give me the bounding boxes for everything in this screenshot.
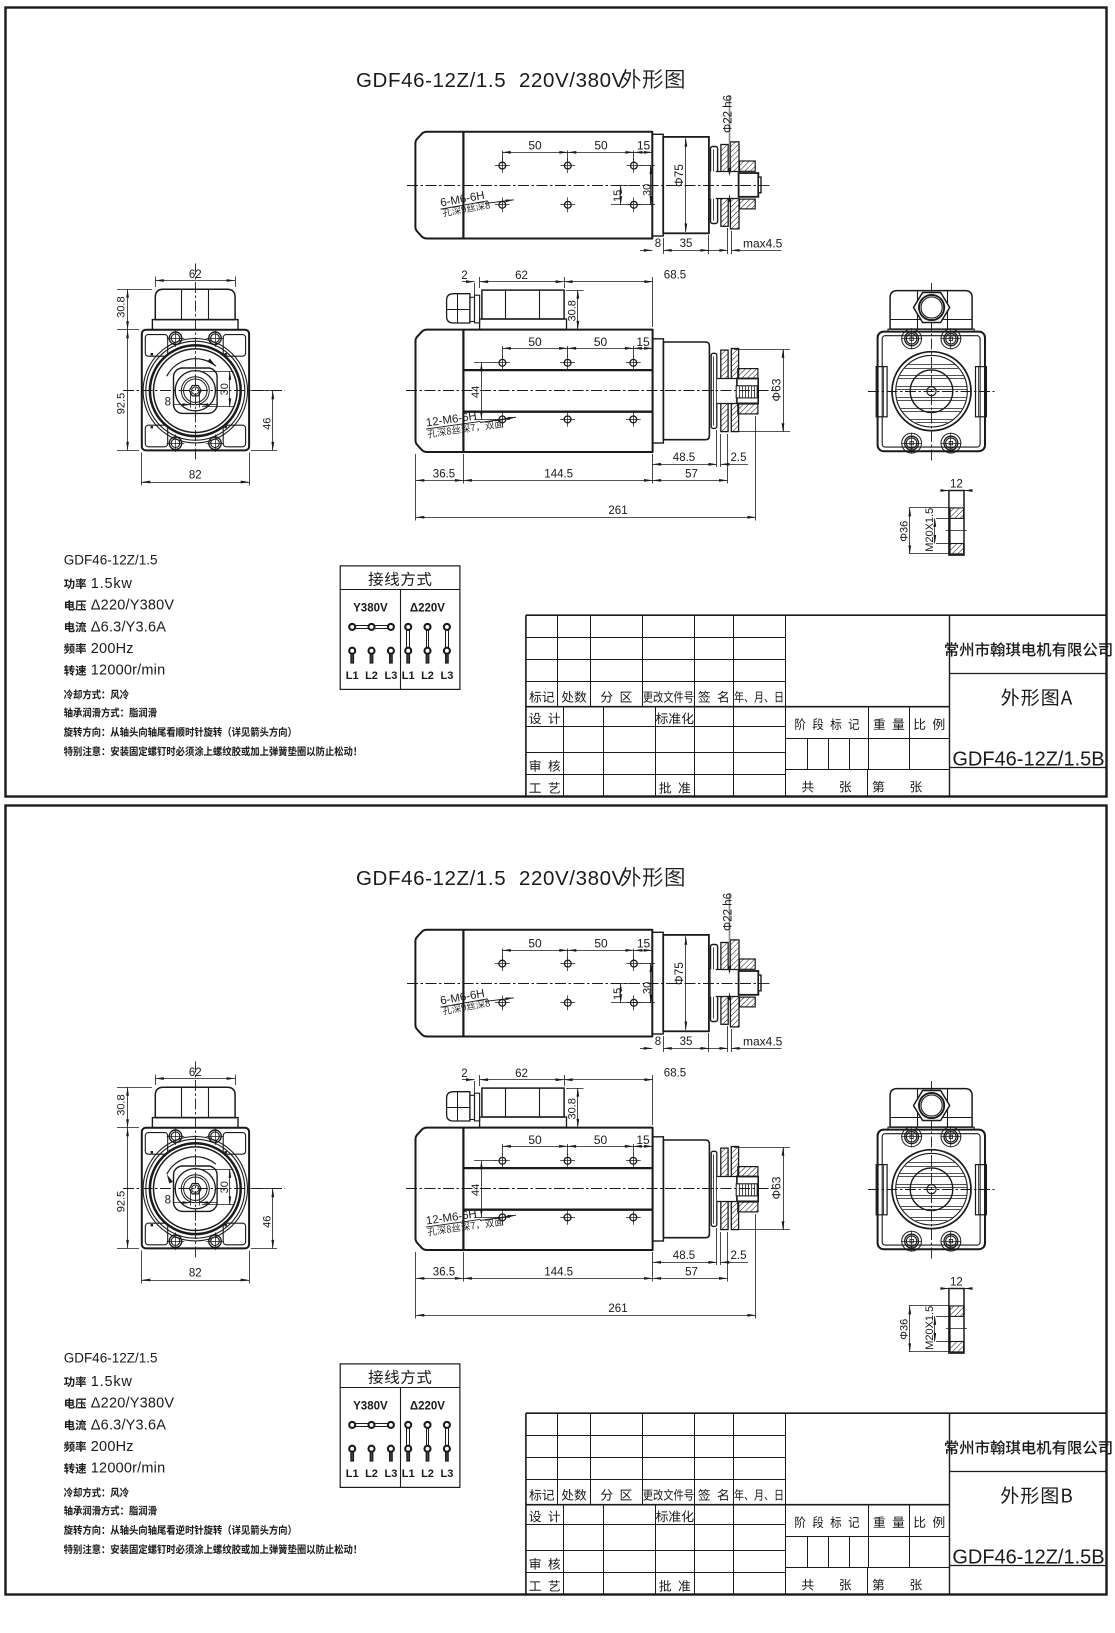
svg-text:50: 50 [594, 335, 608, 349]
svg-text:M20X1.5: M20X1.5 [924, 1306, 936, 1350]
svg-text:Φ63: Φ63 [769, 378, 783, 401]
svg-text:30.8: 30.8 [115, 296, 127, 317]
svg-text:Φ75: Φ75 [672, 164, 686, 187]
svg-text:220V/380V: 220V/380V [519, 69, 626, 92]
svg-text:L2: L2 [421, 670, 434, 682]
svg-text:8: 8 [655, 1036, 661, 1048]
svg-text:50: 50 [528, 139, 542, 153]
svg-text:L2: L2 [365, 1468, 378, 1480]
svg-text:15: 15 [636, 335, 650, 349]
svg-text:2.5: 2.5 [731, 1250, 747, 1262]
svg-text:12000r/min: 12000r/min [91, 663, 166, 679]
svg-text:261: 261 [608, 1303, 627, 1315]
svg-text:Δ220/Y380V: Δ220/Y380V [91, 1396, 175, 1412]
svg-text:Φ75: Φ75 [672, 962, 686, 985]
svg-text:L3: L3 [440, 1468, 453, 1480]
svg-text:2: 2 [461, 1068, 467, 1080]
svg-text:48.5: 48.5 [673, 1250, 695, 1262]
svg-text:82: 82 [189, 1268, 202, 1280]
svg-text:L1: L1 [402, 670, 415, 682]
svg-text:1.5kw: 1.5kw [91, 576, 133, 592]
svg-text:62: 62 [515, 270, 528, 282]
svg-text:35: 35 [680, 1036, 693, 1048]
svg-text:L3: L3 [384, 1468, 397, 1480]
svg-text:30.8: 30.8 [115, 1094, 127, 1115]
svg-text:92.5: 92.5 [115, 1191, 127, 1212]
svg-text:Φ36: Φ36 [899, 521, 911, 542]
svg-text:30.8: 30.8 [567, 300, 579, 321]
svg-text:46: 46 [261, 1216, 273, 1228]
svg-text:Φ36: Φ36 [899, 1319, 911, 1340]
svg-text:15: 15 [637, 937, 651, 951]
svg-text:15: 15 [612, 190, 624, 202]
svg-text:Δ6.3/Y3.6A: Δ6.3/Y3.6A [91, 1417, 166, 1433]
svg-text:GDF46-12Z/1.5: GDF46-12Z/1.5 [356, 867, 506, 890]
svg-text:L3: L3 [384, 670, 397, 682]
svg-text:8: 8 [165, 396, 171, 408]
svg-text:GDF46-12Z/1.5B: GDF46-12Z/1.5B [952, 1546, 1104, 1568]
svg-text:GDF46-12Z/1.5: GDF46-12Z/1.5 [356, 69, 506, 92]
svg-text:GDF46-12Z/1.5: GDF46-12Z/1.5 [64, 1351, 158, 1366]
svg-text:50: 50 [528, 335, 542, 349]
svg-text:62: 62 [189, 1067, 202, 1079]
svg-text:L3: L3 [440, 670, 453, 682]
svg-text:50: 50 [528, 937, 542, 951]
svg-text:8: 8 [165, 1194, 171, 1206]
svg-text:144.5: 144.5 [544, 1266, 573, 1278]
svg-text:57: 57 [685, 1266, 698, 1278]
svg-text:36.5: 36.5 [433, 1266, 455, 1278]
svg-text:Y380V: Y380V [353, 603, 388, 615]
svg-text:82: 82 [189, 470, 202, 482]
svg-text:50: 50 [594, 139, 608, 153]
svg-text:50: 50 [594, 1133, 608, 1147]
svg-text:Y380V: Y380V [353, 1401, 388, 1413]
svg-text:Φ22 h6: Φ22 h6 [723, 893, 735, 931]
svg-text:200Hz: 200Hz [91, 641, 134, 657]
svg-text:30.8: 30.8 [567, 1098, 579, 1119]
svg-text:12: 12 [950, 479, 963, 491]
svg-text:Φ63: Φ63 [769, 1176, 783, 1199]
svg-text:L1: L1 [346, 670, 359, 682]
svg-text:GDF46-12Z/1.5: GDF46-12Z/1.5 [64, 553, 158, 568]
svg-text:Δ220V: Δ220V [410, 603, 445, 615]
svg-text:92.5: 92.5 [115, 393, 127, 414]
svg-text:max4.5: max4.5 [743, 1035, 783, 1049]
svg-text:62: 62 [515, 1068, 528, 1080]
svg-text:L1: L1 [346, 1468, 359, 1480]
svg-text:15: 15 [612, 988, 624, 1000]
svg-text:35: 35 [680, 238, 693, 250]
svg-text:L1: L1 [402, 1468, 415, 1480]
svg-text:50: 50 [594, 937, 608, 951]
svg-text:12: 12 [950, 1277, 963, 1289]
svg-text:68.5: 68.5 [664, 1068, 686, 1080]
svg-text:44: 44 [470, 386, 482, 398]
svg-text:GDF46-12Z/1.5B: GDF46-12Z/1.5B [952, 748, 1104, 770]
svg-text:L2: L2 [421, 1468, 434, 1480]
svg-text:2.5: 2.5 [731, 452, 747, 464]
svg-text:Δ220/Y380V: Δ220/Y380V [91, 598, 175, 614]
svg-text:max4.5: max4.5 [743, 237, 783, 251]
svg-text:Δ6.3/Y3.6A: Δ6.3/Y3.6A [91, 619, 166, 635]
svg-text:L2: L2 [365, 670, 378, 682]
svg-text:44: 44 [470, 1184, 482, 1196]
svg-text:46: 46 [261, 418, 273, 430]
svg-text:Δ220V: Δ220V [410, 1401, 445, 1413]
svg-text:2: 2 [461, 270, 467, 282]
svg-text:50: 50 [528, 1133, 542, 1147]
svg-text:68.5: 68.5 [664, 270, 686, 282]
svg-text:144.5: 144.5 [544, 468, 573, 480]
svg-text:261: 261 [608, 505, 627, 517]
svg-text:8: 8 [655, 238, 661, 250]
svg-text:1.5kw: 1.5kw [91, 1374, 133, 1390]
svg-text:15: 15 [637, 139, 651, 153]
svg-text:30: 30 [219, 1181, 231, 1193]
svg-text:62: 62 [189, 269, 202, 281]
svg-text:200Hz: 200Hz [91, 1439, 134, 1455]
svg-text:36.5: 36.5 [433, 468, 455, 480]
svg-text:Φ22 h6: Φ22 h6 [723, 95, 735, 133]
svg-text:48.5: 48.5 [673, 452, 695, 464]
svg-text:15: 15 [636, 1133, 650, 1147]
svg-text:30: 30 [219, 383, 231, 395]
svg-text:220V/380V: 220V/380V [519, 867, 626, 890]
svg-text:M20X1.5: M20X1.5 [924, 508, 936, 552]
svg-text:12000r/min: 12000r/min [91, 1461, 166, 1477]
svg-text:57: 57 [685, 468, 698, 480]
